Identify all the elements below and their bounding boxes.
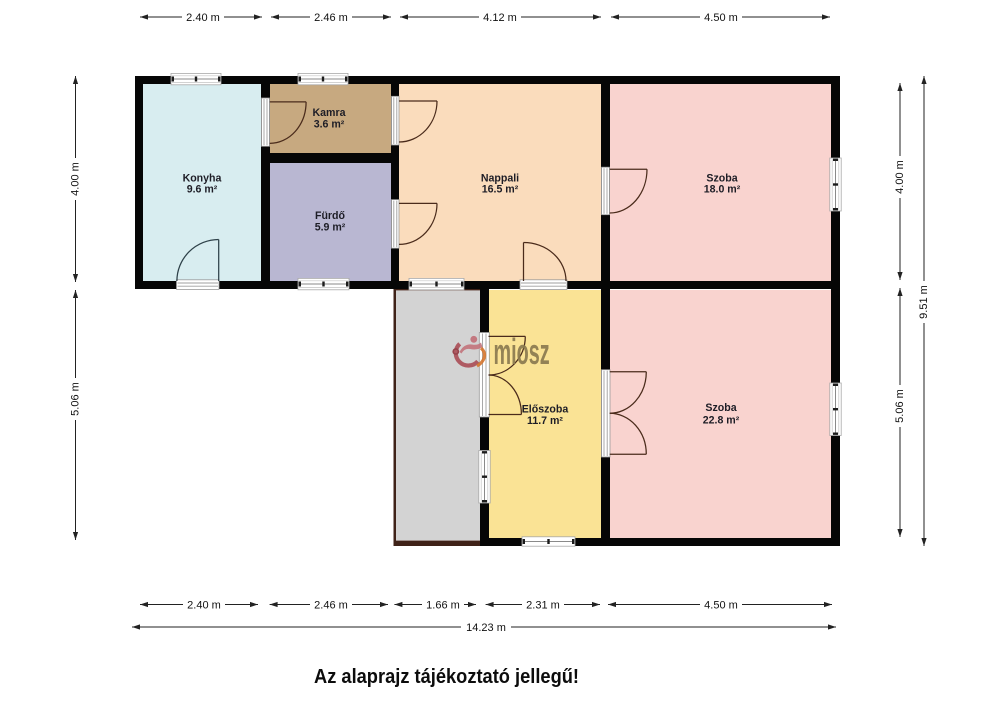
svg-text:9.51 m: 9.51 m	[918, 285, 930, 319]
svg-text:Az alaprajz tájékoztató jelleg: Az alaprajz tájékoztató jellegű!	[314, 665, 579, 688]
svg-text:Szoba: Szoba	[706, 172, 737, 184]
svg-text:3.6 m²: 3.6 m²	[314, 119, 345, 131]
svg-text:Előszoba: Előszoba	[522, 404, 569, 416]
svg-text:11.7 m²: 11.7 m²	[527, 415, 563, 427]
svg-text:miosz: miosz	[494, 333, 550, 373]
svg-text:4.00 m: 4.00 m	[69, 162, 81, 196]
svg-text:2.31 m: 2.31 m	[526, 600, 560, 612]
svg-text:Kamra: Kamra	[313, 107, 346, 119]
svg-text:2.40 m: 2.40 m	[187, 600, 221, 612]
svg-text:5.06 m: 5.06 m	[894, 389, 906, 423]
svg-text:2.40 m: 2.40 m	[186, 12, 220, 24]
svg-text:Fürdő: Fürdő	[315, 210, 346, 222]
svg-text:Konyha: Konyha	[183, 172, 222, 184]
svg-text:4.50 m: 4.50 m	[704, 12, 738, 24]
svg-text:22.8 m²: 22.8 m²	[703, 415, 740, 427]
svg-text:4.50 m: 4.50 m	[704, 600, 738, 612]
svg-text:1.66 m: 1.66 m	[426, 600, 460, 612]
svg-text:2.46 m: 2.46 m	[314, 12, 348, 24]
svg-text:5.9 m²: 5.9 m²	[315, 222, 346, 234]
svg-text:2.46 m: 2.46 m	[314, 600, 348, 612]
svg-text:9.6 m²: 9.6 m²	[187, 184, 218, 196]
svg-text:16.5 m²: 16.5 m²	[482, 184, 519, 196]
svg-text:4.00 m: 4.00 m	[894, 160, 906, 194]
svg-text:14.23 m: 14.23 m	[466, 622, 506, 634]
svg-text:Nappali: Nappali	[481, 172, 519, 184]
svg-text:5.06 m: 5.06 m	[69, 382, 81, 416]
svg-text:4.12 m: 4.12 m	[483, 12, 517, 24]
svg-text:Szoba: Szoba	[705, 402, 736, 414]
svg-text:18.0 m²: 18.0 m²	[704, 184, 741, 196]
